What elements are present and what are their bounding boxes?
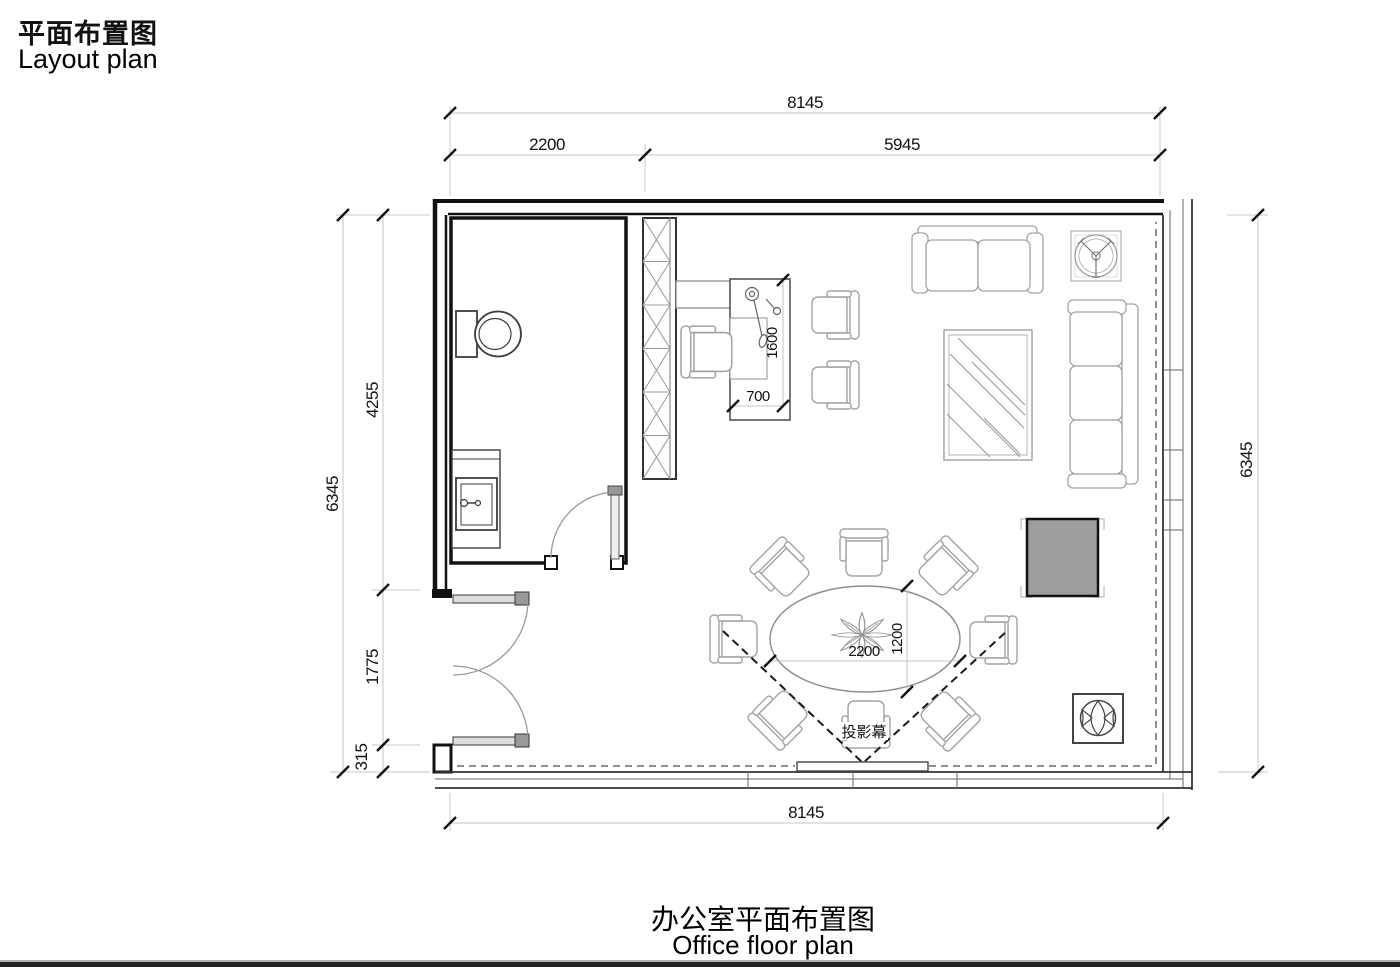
storage-cabinet	[1021, 519, 1104, 597]
conference-chair-top	[840, 529, 888, 576]
dim-desk-depth: 700	[746, 388, 770, 405]
sink-vanity	[452, 450, 500, 548]
dim-table-length: 2200	[848, 643, 880, 660]
window-wall-right	[1163, 199, 1192, 790]
conference-chair-left	[710, 615, 757, 663]
conference-chair-bottom-left	[746, 684, 813, 751]
round-side-table	[1071, 231, 1121, 281]
ac-unit-symbol	[1073, 694, 1123, 743]
guest-chair-2	[812, 361, 859, 409]
entry-double-door	[453, 592, 529, 747]
conference-chair-right	[970, 616, 1017, 664]
toilet	[456, 311, 521, 357]
dim-top-right-segment: 5945	[884, 135, 920, 154]
wall-corner-block	[434, 745, 451, 772]
conference-chair-top-left	[748, 535, 815, 602]
window-mullions-right	[1163, 370, 1183, 530]
executive-chair	[681, 326, 732, 378]
door-swing-arc	[453, 666, 528, 740]
dim-bottom-total: 8145	[788, 803, 824, 822]
floor-plan: 投影幕	[0, 0, 1400, 970]
desk-return	[676, 281, 730, 308]
dim-top-total: 8145	[787, 93, 823, 112]
window-mullions-bottom	[748, 772, 957, 788]
conference-chair-top-right	[912, 534, 979, 601]
projection-screen-label: 投影幕	[841, 724, 886, 741]
dim-table-width: 1200	[889, 623, 906, 655]
window-wall-bottom	[435, 772, 1192, 788]
toilet-room	[451, 218, 626, 571]
dim-top-left-segment: 2200	[529, 135, 565, 154]
desk-drawer-unit	[730, 318, 767, 379]
guest-chair-1	[812, 291, 859, 339]
door-swing-arc	[453, 601, 528, 675]
dim-left-upper: 4255	[363, 382, 382, 418]
dim-left-middle: 1775	[363, 649, 382, 685]
tall-cabinet	[643, 218, 676, 479]
dim-left-total: 6345	[323, 476, 342, 512]
dim-right-total: 6345	[1237, 442, 1256, 478]
dim-left-lower: 315	[352, 744, 371, 771]
three-seat-sofa	[1068, 300, 1138, 488]
area-rug	[944, 330, 1032, 460]
wall-end-cap	[432, 589, 452, 598]
conference-chair-bottom-right	[914, 685, 981, 752]
loveseat-sofa	[912, 226, 1043, 293]
lounge-group	[912, 226, 1138, 488]
caption-en: Office floor plan	[672, 930, 854, 961]
page: 平面布置图 Layout plan	[0, 0, 1400, 970]
bottom-rule-black	[0, 962, 1400, 967]
projection-screen	[797, 762, 928, 771]
dim-desk-length: 1600	[764, 327, 781, 359]
